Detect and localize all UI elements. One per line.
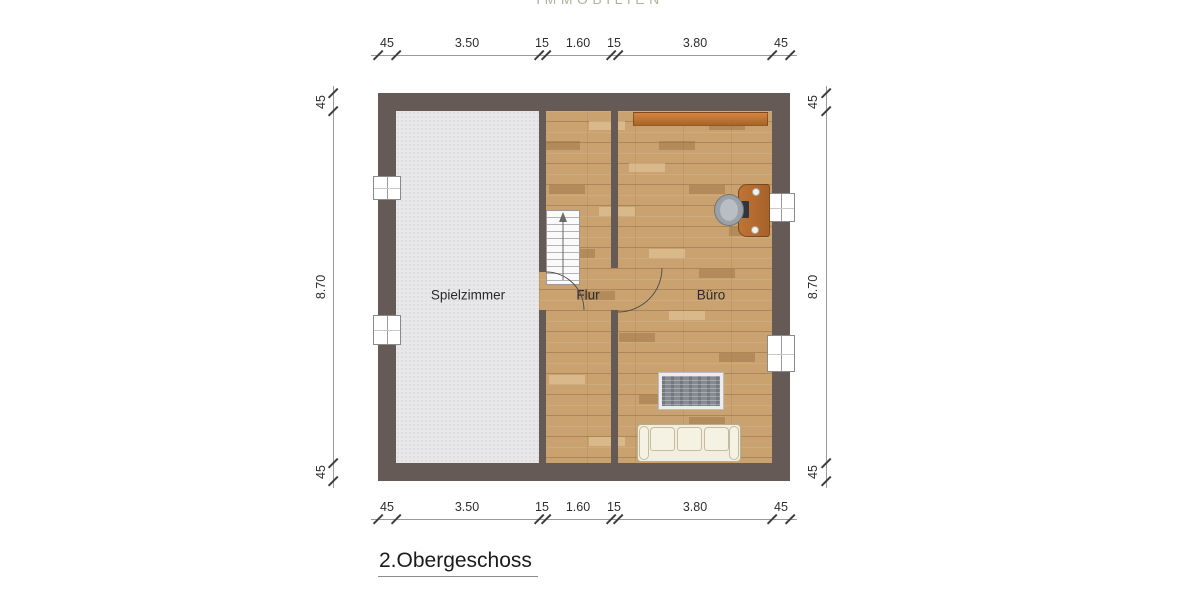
wall-spielzimmer-flur-lower bbox=[539, 310, 546, 463]
sideboard-icon bbox=[633, 112, 768, 126]
floorplan-canvas: IMMOBILIEN 45 3.50 15 1.60 15 3.80 45 45… bbox=[0, 0, 1200, 600]
dim-value: 8.70 bbox=[314, 275, 328, 299]
window-icon bbox=[373, 176, 401, 200]
dim-value: 45 bbox=[314, 465, 328, 479]
dim-value: 45 bbox=[806, 465, 820, 479]
sofa-icon bbox=[637, 424, 741, 462]
dim-value: 8.70 bbox=[806, 275, 820, 299]
floor-plank bbox=[589, 121, 625, 130]
dim-value: 15 bbox=[607, 500, 621, 514]
window-icon bbox=[767, 335, 795, 372]
dim-value: 3.50 bbox=[455, 500, 479, 514]
wall-spielzimmer-flur-upper bbox=[539, 111, 546, 272]
floor-plank bbox=[719, 353, 755, 362]
dim-line-top bbox=[371, 55, 797, 56]
room-label-spielzimmer: Spielzimmer bbox=[431, 288, 505, 303]
floor-plank bbox=[549, 185, 585, 194]
floor-plank bbox=[544, 141, 580, 150]
floor-plank bbox=[619, 333, 655, 342]
wall-flur-buero-upper bbox=[611, 111, 618, 268]
floor-plank bbox=[589, 437, 625, 446]
dim-value: 15 bbox=[607, 36, 621, 50]
dim-value: 1.60 bbox=[566, 36, 590, 50]
dim-value: 45 bbox=[380, 36, 394, 50]
dim-value: 45 bbox=[774, 36, 788, 50]
office-chair-icon bbox=[714, 194, 744, 226]
floor-plank bbox=[699, 269, 735, 278]
floor-title: 2.Obergeschoss bbox=[378, 549, 538, 577]
dim-value: 3.80 bbox=[683, 36, 707, 50]
dim-line-bottom bbox=[371, 519, 797, 520]
floor-plank bbox=[649, 249, 685, 258]
room-label-flur: Flur bbox=[576, 288, 599, 303]
floor-plank bbox=[659, 141, 695, 150]
dim-value: 3.50 bbox=[455, 36, 479, 50]
dim-value: 45 bbox=[806, 95, 820, 109]
floor-plank bbox=[669, 311, 705, 320]
floor-plank bbox=[629, 163, 665, 172]
floor-plank bbox=[689, 185, 725, 194]
dim-value: 45 bbox=[380, 500, 394, 514]
floor-plank bbox=[549, 375, 585, 384]
dim-value: 1.60 bbox=[566, 500, 590, 514]
brand-logo: IMMOBILIEN bbox=[536, 0, 663, 7]
desk-item-icon bbox=[752, 188, 760, 196]
dim-value: 15 bbox=[535, 500, 549, 514]
dim-line-left bbox=[333, 86, 334, 488]
wood-floor bbox=[539, 111, 772, 463]
window-icon bbox=[767, 193, 795, 222]
dim-value: 15 bbox=[535, 36, 549, 50]
wall-flur-buero-lower bbox=[611, 310, 618, 463]
dim-value: 45 bbox=[774, 500, 788, 514]
window-icon bbox=[373, 315, 401, 345]
floor-plan: Spielzimmer Flur Büro bbox=[378, 93, 790, 481]
rug-icon bbox=[658, 372, 724, 410]
dim-line-right bbox=[826, 86, 827, 488]
room-label-buero: Büro bbox=[697, 288, 726, 303]
dim-value: 45 bbox=[314, 95, 328, 109]
staircase-icon bbox=[546, 210, 580, 285]
dim-value: 3.80 bbox=[683, 500, 707, 514]
desk-item-icon bbox=[751, 226, 759, 234]
